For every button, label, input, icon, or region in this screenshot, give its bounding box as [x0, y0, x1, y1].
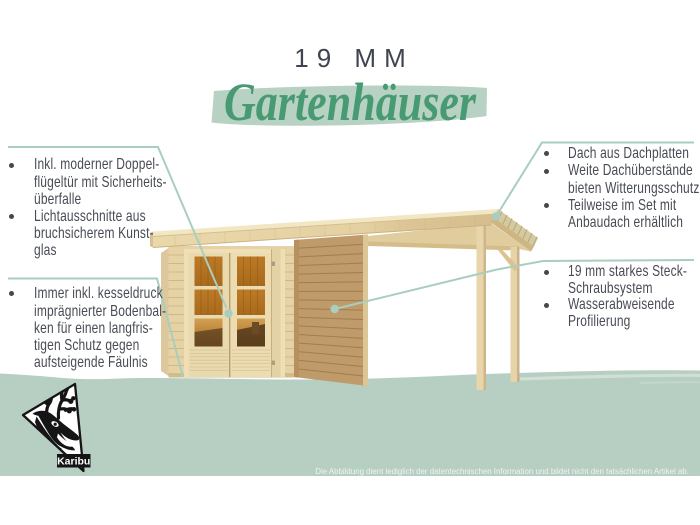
svg-text:Die Abbildung dient lediglich: Die Abbildung dient lediglich der datent…: [315, 467, 689, 476]
svg-text:Gartenhäuser: Gartenhäuser: [224, 72, 477, 132]
svg-text:Karibu: Karibu: [57, 456, 90, 468]
